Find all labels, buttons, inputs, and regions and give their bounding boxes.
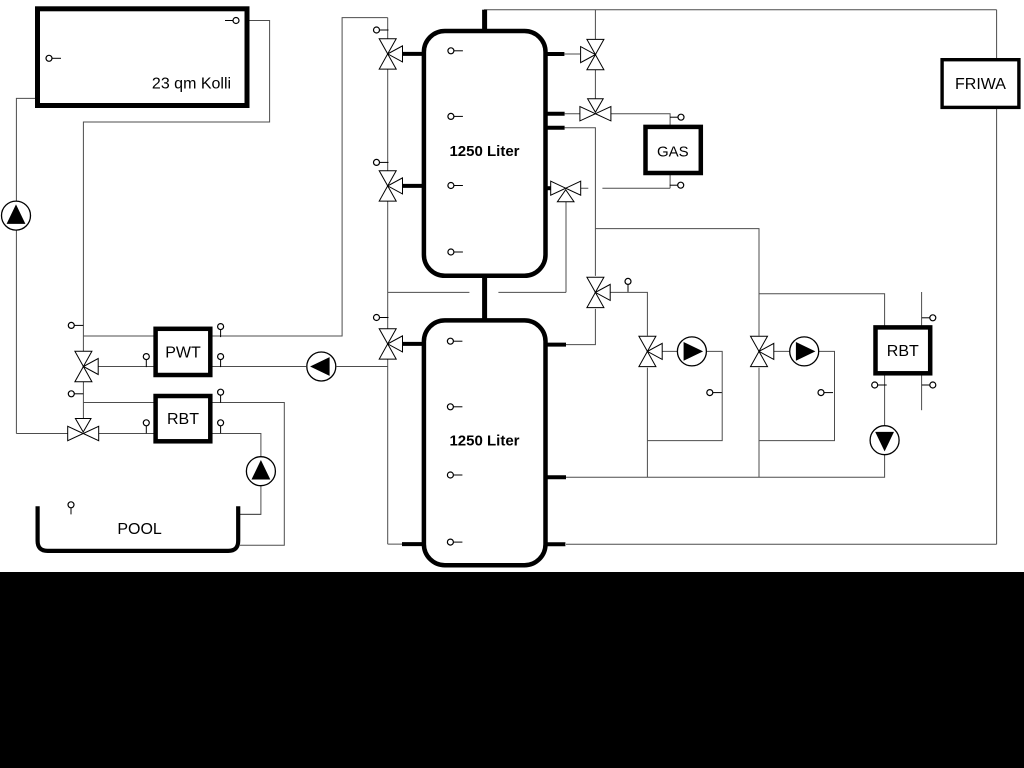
svg-text:PWT: PWT bbox=[165, 344, 201, 361]
svg-text:POOL: POOL bbox=[117, 521, 162, 538]
svg-text:1250 Liter: 1250 Liter bbox=[449, 143, 519, 160]
svg-text:GAS: GAS bbox=[657, 144, 689, 161]
svg-text:1250 Liter: 1250 Liter bbox=[449, 433, 519, 450]
svg-text:FRIWA: FRIWA bbox=[955, 76, 1006, 93]
svg-text:23 qm Kolli: 23 qm Kolli bbox=[152, 76, 231, 93]
svg-text:RBT: RBT bbox=[887, 343, 919, 360]
svg-text:RBT: RBT bbox=[167, 411, 199, 428]
